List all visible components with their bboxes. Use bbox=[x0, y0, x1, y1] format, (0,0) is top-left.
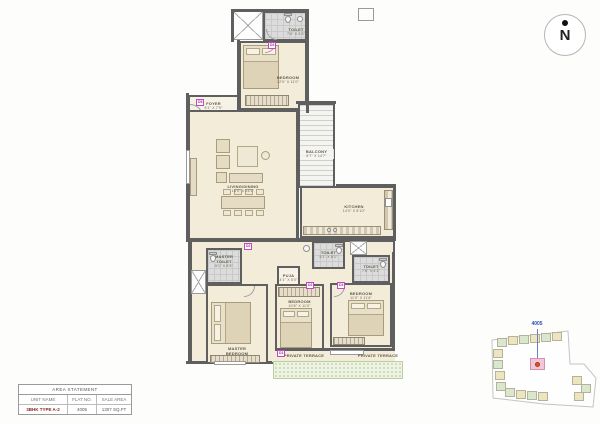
area-statement-table: AREA STATEMENT UNIT NAME FLAT NO. SALE A… bbox=[18, 384, 132, 415]
flat-no-value: 4005 bbox=[68, 405, 97, 414]
coffee-table-icon bbox=[237, 146, 258, 167]
wall bbox=[188, 240, 191, 364]
room-dims: 6'7" X 14'7" bbox=[306, 154, 326, 159]
area-statement-title: AREA STATEMENT bbox=[19, 385, 131, 395]
area-statement-header: UNIT NAME FLAT NO. SALE AREA bbox=[19, 395, 131, 405]
room-name: PRIVATE TERRACE bbox=[358, 353, 398, 358]
dining-chair-icon bbox=[245, 210, 253, 216]
wardrobe-icon bbox=[278, 287, 320, 297]
north-dot-icon bbox=[562, 20, 568, 26]
key-plan-building bbox=[519, 335, 529, 344]
key-plan-building bbox=[495, 371, 505, 380]
room-dims: 5'1" X 8'5" bbox=[215, 264, 233, 269]
key-plan-building bbox=[552, 332, 562, 341]
wall bbox=[306, 9, 309, 113]
key-plan-building bbox=[516, 390, 526, 399]
window bbox=[186, 150, 190, 184]
key-plan-building bbox=[497, 338, 507, 347]
door-tag: D4 bbox=[268, 42, 276, 49]
duct-shaft-icon bbox=[350, 241, 367, 255]
dining-chair-icon bbox=[234, 210, 242, 216]
door-tag: D3 bbox=[337, 282, 345, 289]
bed-icon bbox=[211, 302, 251, 344]
key-plan-building bbox=[530, 334, 540, 343]
col-sale-area: SALE AREA bbox=[97, 395, 131, 404]
wall bbox=[231, 9, 309, 12]
north-indicator: N bbox=[544, 14, 586, 56]
key-plan-building bbox=[541, 333, 551, 342]
key-plan-pointer-line bbox=[537, 329, 538, 358]
tv-console-icon bbox=[190, 158, 197, 196]
sink-icon bbox=[385, 198, 392, 207]
door-tag: D1 bbox=[277, 350, 285, 357]
col-unit-name: UNIT NAME bbox=[19, 395, 68, 404]
bed-icon bbox=[280, 308, 312, 348]
wall bbox=[336, 184, 395, 187]
room-dims: 5'1" X 8'1" bbox=[319, 255, 337, 260]
wc-icon bbox=[209, 252, 217, 263]
key-plan-building bbox=[538, 392, 548, 401]
dining-chair-icon bbox=[256, 210, 264, 216]
room-dims: 14'0" X 8'10" bbox=[343, 209, 365, 214]
wall bbox=[392, 252, 395, 349]
wc-icon bbox=[379, 258, 387, 269]
key-plan: 4005 bbox=[480, 318, 598, 410]
dining-table-icon bbox=[221, 196, 265, 209]
north-letter: N bbox=[545, 27, 585, 44]
dining-chair-icon bbox=[223, 210, 231, 216]
wall bbox=[237, 40, 240, 97]
window bbox=[214, 361, 246, 365]
door-tag: D2 bbox=[306, 282, 314, 289]
door-tag: D5 bbox=[196, 99, 204, 106]
room-dims: 7'6" X 5'3" bbox=[287, 32, 305, 37]
sale-area-value: 1307 SQ.FT bbox=[97, 405, 131, 414]
wc-icon bbox=[335, 244, 343, 255]
duct-shaft-icon bbox=[191, 270, 206, 294]
key-plan-building bbox=[505, 388, 515, 397]
key-plan-locator-dot bbox=[535, 362, 540, 367]
room-dims: 5'1" X 7'9" bbox=[204, 106, 222, 111]
wc-icon bbox=[284, 13, 292, 24]
room-dims: 4'1" X 5'0" bbox=[279, 278, 297, 283]
kitchen-counter-icon bbox=[384, 190, 393, 230]
room-name: PRIVATE TERRACE bbox=[284, 353, 324, 358]
key-plan-building bbox=[508, 336, 518, 345]
duct-shaft-icon bbox=[233, 11, 263, 40]
door-tag: D2 bbox=[244, 243, 252, 250]
basin-icon bbox=[303, 245, 310, 252]
sofa-icon bbox=[229, 173, 263, 183]
wall bbox=[296, 101, 336, 104]
armchair-icon bbox=[216, 155, 230, 169]
room-dims: 12'0" X 11'0" bbox=[277, 80, 299, 85]
armchair-icon bbox=[216, 172, 227, 183]
wall bbox=[190, 238, 240, 241]
ottoman-icon bbox=[261, 151, 270, 160]
wall bbox=[393, 184, 396, 238]
floorplan-canvas: N TOILET 7'6" X 5'3" BEDROOM 12'0" X 11'… bbox=[0, 0, 600, 424]
key-plan-flat-label: 4005 bbox=[524, 321, 550, 327]
wardrobe-icon bbox=[245, 95, 289, 106]
col-flat-no: FLAT NO. bbox=[68, 395, 97, 404]
basin-icon bbox=[297, 16, 303, 22]
stove-burner-icon bbox=[333, 228, 337, 232]
key-plan-building bbox=[574, 392, 584, 401]
wall bbox=[231, 9, 234, 42]
niche-box bbox=[358, 8, 374, 21]
wall bbox=[333, 103, 335, 188]
key-plan-building bbox=[527, 391, 537, 400]
wall bbox=[296, 108, 299, 240]
terrace-garden bbox=[273, 361, 403, 379]
key-plan-building bbox=[493, 349, 503, 358]
room-dims: 16'0" X 24'1" bbox=[232, 189, 254, 194]
area-statement-row: 3BHK TYPE A-2 4005 1307 SQ.FT bbox=[19, 405, 131, 414]
kitchen-counter-icon bbox=[303, 226, 381, 235]
stove-burner-icon bbox=[327, 228, 331, 232]
key-plan-building bbox=[493, 360, 503, 369]
wardrobe-icon bbox=[333, 337, 365, 345]
room-balcony: BALCONY 6'7" X 14'7" bbox=[298, 103, 335, 188]
room-dims: 7'6" X 4'1" bbox=[362, 269, 380, 274]
unit-name-value: 3BHK TYPE A-2 bbox=[19, 405, 68, 414]
armchair-icon bbox=[216, 139, 230, 153]
bed-icon bbox=[348, 300, 384, 336]
